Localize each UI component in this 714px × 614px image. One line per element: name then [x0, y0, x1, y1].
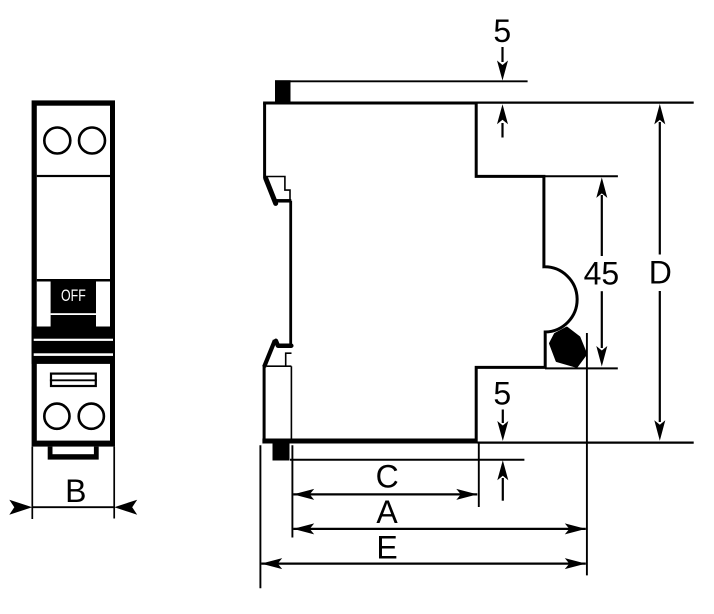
svg-text:OFF: OFF: [61, 287, 86, 305]
svg-text:B: B: [65, 473, 86, 509]
svg-text:5: 5: [493, 13, 511, 49]
svg-text:E: E: [376, 530, 397, 566]
svg-text:A: A: [376, 494, 398, 530]
svg-text:5: 5: [493, 375, 511, 411]
svg-text:45: 45: [584, 255, 620, 291]
svg-text:C: C: [376, 459, 399, 495]
svg-text:D: D: [649, 255, 672, 291]
